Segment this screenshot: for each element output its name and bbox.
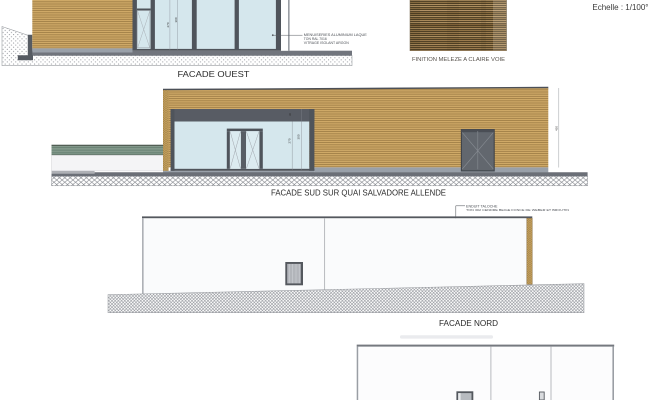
svg-text:300: 300	[174, 17, 178, 22]
svg-text:30: 30	[288, 113, 292, 116]
svg-text:430: 430	[554, 126, 558, 131]
svg-text:VITRAGE ISOLANT ARGON: VITRAGE ISOLANT ARGON	[304, 41, 350, 45]
svg-text:TON 302 CENDRE BEIGE FONCE DE: TON 302 CENDRE BEIGE FONCE DE WEBER ET B…	[466, 208, 569, 212]
svg-text:FACADE OUEST: FACADE OUEST	[178, 69, 250, 79]
svg-text:FACADE NORD: FACADE NORD	[439, 318, 498, 328]
svg-text:FINITION MELEZE A CLAIRE VOIE: FINITION MELEZE A CLAIRE VOIE	[412, 57, 506, 63]
svg-text:270: 270	[287, 138, 291, 143]
svg-text:FACADE SUD SUR QUAI SALVADORE: FACADE SUD SUR QUAI SALVADORE ALLENDE	[271, 188, 446, 198]
svg-text:300: 300	[297, 134, 301, 139]
svg-text:270: 270	[166, 22, 170, 27]
svg-text:Echelle : 1/100°: Echelle : 1/100°	[592, 3, 648, 12]
